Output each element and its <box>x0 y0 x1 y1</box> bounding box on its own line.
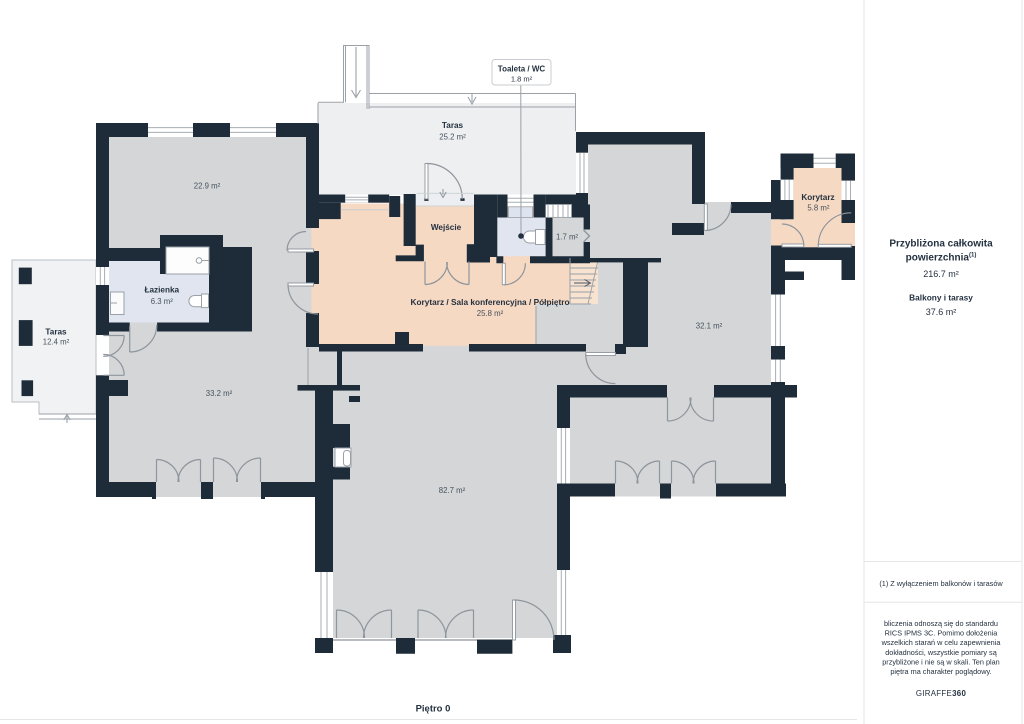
svg-text:Taras: Taras <box>442 121 464 130</box>
svg-text:Korytarz: Korytarz <box>801 193 834 202</box>
svg-text:przybliżone i nie są w skali.: przybliżone i nie są w skali. Ten plan <box>882 657 1000 666</box>
svg-text:25.8 m²: 25.8 m² <box>477 309 504 318</box>
svg-text:6.3 m²: 6.3 m² <box>151 297 173 306</box>
svg-text:Wejście: Wejście <box>431 223 462 232</box>
svg-text:33.2 m²: 33.2 m² <box>206 389 233 398</box>
svg-text:1.8 m²: 1.8 m² <box>511 75 533 84</box>
svg-text:Piętro 0: Piętro 0 <box>416 704 451 715</box>
svg-text:82.7 m²: 82.7 m² <box>439 486 466 495</box>
svg-text:Taras: Taras <box>45 328 67 337</box>
svg-text:216.7 m²: 216.7 m² <box>923 269 959 279</box>
svg-text:bliczenia odnoszą się do stand: bliczenia odnoszą się do standardu <box>884 619 998 628</box>
svg-text:5.8 m²: 5.8 m² <box>807 204 829 213</box>
svg-text:RICS IPMS 3C. Pomimo dołożenia: RICS IPMS 3C. Pomimo dołożenia <box>885 629 999 638</box>
svg-text:Korytarz / Sala konferencyjna: Korytarz / Sala konferencyjna / Półpiętr… <box>410 297 569 307</box>
svg-text:12.4 m²: 12.4 m² <box>43 337 70 346</box>
svg-text:(1) Z wyłączeniem balkonów i t: (1) Z wyłączeniem balkonów i tarasów <box>879 579 1003 588</box>
svg-text:dokładności, wszystkie pomiary: dokładności, wszystkie pomiary są <box>885 648 997 657</box>
svg-text:powierzchnia(1): powierzchnia(1) <box>906 252 977 263</box>
svg-text:32.1 m²: 32.1 m² <box>696 322 723 331</box>
svg-text:1.7 m²: 1.7 m² <box>556 233 578 242</box>
svg-text:22.9 m²: 22.9 m² <box>194 182 221 191</box>
svg-text:wszelkich starań w celu zapewn: wszelkich starań w celu zapewnienia <box>881 638 1002 647</box>
svg-text:Toaleta / WC: Toaleta / WC <box>498 65 546 74</box>
svg-text:Balkony i tarasy: Balkony i tarasy <box>909 292 973 302</box>
svg-text:37.6 m²: 37.6 m² <box>926 307 957 317</box>
svg-text:25.2 m²: 25.2 m² <box>439 133 466 142</box>
svg-text:GIRAFFE360: GIRAFFE360 <box>916 689 967 698</box>
svg-text:Łazienka: Łazienka <box>145 285 180 294</box>
svg-text:Przybliżona całkowita: Przybliżona całkowita <box>889 239 993 250</box>
svg-text:piętra ma charakter poglądowy.: piętra ma charakter poglądowy. <box>890 667 991 676</box>
